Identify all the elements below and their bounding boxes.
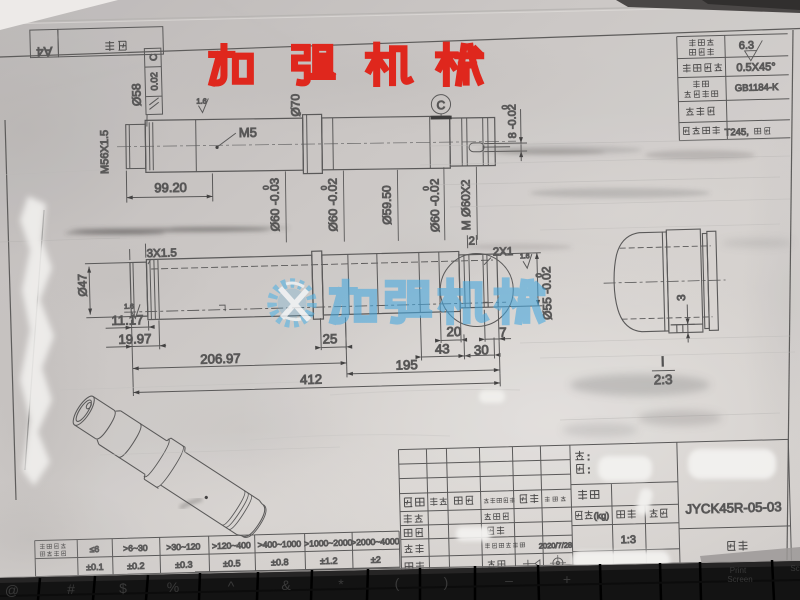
svg-text:Sc: Sc [790, 564, 799, 573]
svg-text:+: + [563, 571, 571, 587]
svg-text:Print: Print [730, 566, 747, 575]
svg-text:Screen: Screen [727, 575, 752, 584]
svg-text:–: – [505, 572, 513, 588]
svg-text:&: & [281, 577, 291, 593]
svg-text:#: # [67, 581, 75, 597]
svg-text:$: $ [119, 580, 127, 596]
svg-text:(: ( [395, 575, 400, 591]
svg-text:@: @ [5, 582, 19, 598]
svg-text:^: ^ [228, 578, 235, 594]
svg-text:): ) [444, 574, 449, 590]
svg-text:%: % [167, 579, 179, 595]
svg-text:*: * [338, 576, 344, 592]
